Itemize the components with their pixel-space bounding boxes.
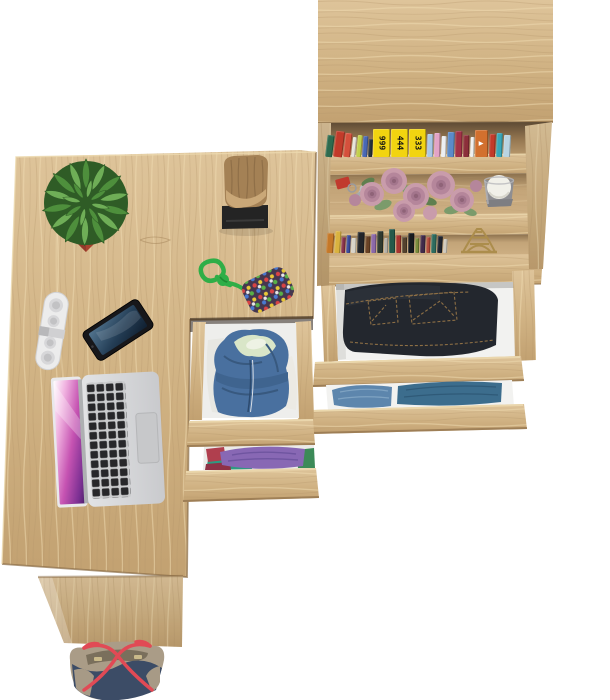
- book-spine: [420, 235, 426, 253]
- book-spine: [357, 232, 365, 253]
- drawer-rail-right-grain: [512, 270, 536, 361]
- hoodie-drawer-front-grain: [187, 419, 315, 447]
- book-spine: [443, 239, 448, 253]
- stump-decor: [219, 155, 273, 236]
- book-spine: [447, 132, 455, 157]
- drawer-rail-left-grain: [321, 285, 338, 362]
- laptop: [51, 371, 166, 508]
- desk-side-panel: [38, 576, 183, 647]
- bag-clasp-left: [94, 657, 102, 661]
- denim-hoodie-in-drawer: [213, 329, 289, 417]
- shelf-board-1-grain: [321, 154, 549, 175]
- bookcase-right-side-shade: [525, 122, 552, 269]
- book-spine: [503, 135, 511, 157]
- bookshelf-lower-row: [326, 229, 454, 253]
- book-spine: [371, 234, 376, 253]
- bookshelf-top-row: 999444333▲: [325, 124, 517, 157]
- stump-black-base: [222, 205, 268, 229]
- book-spine: [377, 231, 383, 253]
- book-spine: [427, 134, 433, 157]
- book-spine: [455, 131, 462, 157]
- denim-shirts-in-open-drawer: [332, 382, 502, 408]
- folded-clothes-in-drawer: [205, 447, 315, 470]
- book-spine: [434, 133, 440, 157]
- jeans-in-open-drawer: [343, 282, 498, 356]
- bag-clasp-right: [134, 655, 142, 659]
- book-spine: ▲: [475, 130, 488, 157]
- book-spine: 333: [409, 129, 426, 157]
- book-spine: [402, 237, 407, 253]
- tote-bag: [70, 641, 164, 700]
- speaker-clip: [38, 326, 49, 336]
- book-spine: [396, 235, 401, 253]
- book-spine: [384, 238, 388, 253]
- scene-illustration: [0, 0, 610, 700]
- book-spine: [389, 229, 395, 253]
- book-spine: [365, 236, 371, 253]
- book-spine: [431, 234, 437, 253]
- room-scene: 999444333▲: [0, 0, 610, 700]
- bookcase: [311, 0, 553, 434]
- book-spine: [496, 133, 503, 157]
- book-spine: [489, 134, 496, 157]
- bookcase-bottom-edge-grain: [321, 254, 543, 286]
- bookcase-top-grain: [318, 0, 553, 123]
- laptop-trackpad: [136, 412, 160, 463]
- under-desk-drawer-unit: [183, 316, 319, 502]
- book-spine: [441, 136, 447, 157]
- book-spine: [426, 237, 431, 253]
- stump-base-highlight: [226, 220, 264, 221]
- book-spine: [351, 238, 357, 253]
- side-panel-top-shadow: [38, 576, 183, 577]
- book-spine: [437, 236, 443, 253]
- book-spine: [408, 233, 414, 253]
- book-spine: [415, 238, 419, 253]
- laptop-keyboard: [86, 381, 131, 499]
